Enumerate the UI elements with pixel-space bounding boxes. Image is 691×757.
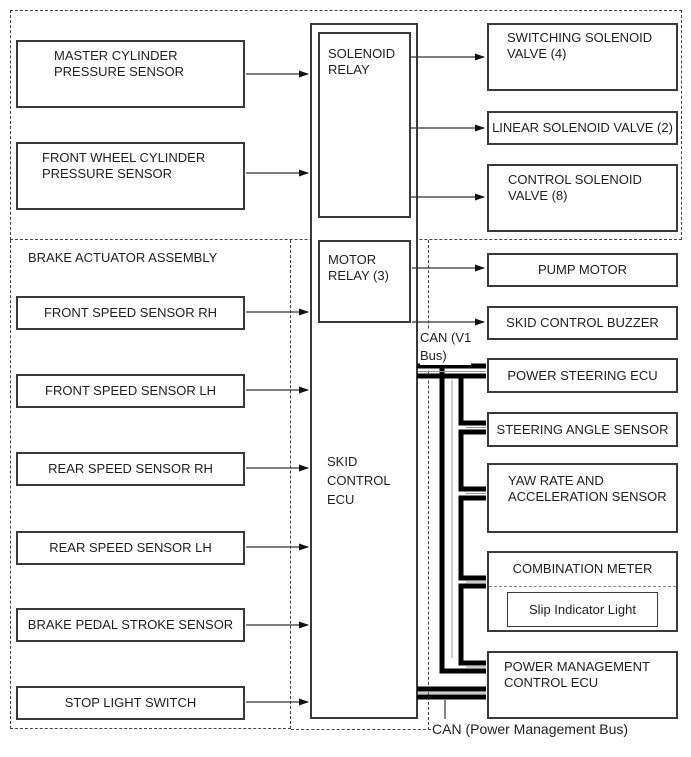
box-label: MOTOR RELAY (3) (328, 252, 405, 284)
box-label: MASTER CYLINDER PRESSURE SENSOR (54, 48, 237, 80)
box-pump-motor: PUMP MOTOR (487, 253, 678, 287)
box-label: STEERING ANGLE SENSOR (489, 422, 676, 438)
box-label: PUMP MOTOR (489, 262, 676, 278)
can-dashed-group-left-border (428, 240, 430, 730)
box-label: LINEAR SOLENOID VALVE (2) (489, 120, 676, 136)
label-brake-actuator-assembly: BRAKE ACTUATOR ASSEMBLY (28, 250, 217, 266)
label-can-v1-bus: CAN (V1 Bus) (420, 329, 471, 365)
box-yaw-rate-acceleration-sensor: YAW RATE AND ACCELERATION SENSOR (487, 463, 678, 533)
box-label: FRONT SPEED SENSOR RH (18, 305, 243, 321)
box-slip-indicator-light: Slip Indicator Light (507, 592, 658, 627)
box-front-speed-sensor-lh: FRONT SPEED SENSOR LH (16, 374, 245, 408)
label-can-power-management-bus: CAN (Power Management Bus) (432, 721, 628, 737)
box-switching-solenoid-valve: SWITCHING SOLENOID VALVE (4) (487, 23, 678, 91)
box-power-steering-ecu: POWER STEERING ECU (487, 358, 678, 393)
box-label: Slip Indicator Light (508, 602, 657, 618)
box-label: YAW RATE AND ACCELERATION SENSOR (508, 473, 672, 505)
box-front-speed-sensor-rh: FRONT SPEED SENSOR RH (16, 296, 245, 330)
combination-meter-divider (489, 586, 676, 587)
box-label: FRONT WHEEL CYLINDER PRESSURE SENSOR (42, 150, 237, 182)
box-label: REAR SPEED SENSOR LH (18, 540, 243, 556)
box-stop-light-switch: STOP LIGHT SWITCH (16, 686, 245, 720)
box-label: SOLENOID RELAY (328, 46, 405, 78)
abs-skid-control-wiring-diagram: MASTER CYLINDER PRESSURE SENSOR FRONT WH… (0, 0, 691, 757)
box-label: POWER STEERING ECU (489, 368, 676, 384)
box-label: STOP LIGHT SWITCH (18, 695, 243, 711)
box-label: FRONT SPEED SENSOR LH (18, 383, 243, 399)
box-motor-relay: MOTOR RELAY (3) (318, 240, 411, 323)
box-brake-pedal-stroke-sensor: BRAKE PEDAL STROKE SENSOR (16, 608, 245, 642)
box-linear-solenoid-valve: LINEAR SOLENOID VALVE (2) (487, 111, 678, 145)
box-label: BRAKE PEDAL STROKE SENSOR (18, 617, 243, 633)
bottom-dashed-extension (291, 729, 431, 731)
box-solenoid-relay: SOLENOID RELAY (318, 32, 411, 218)
box-control-solenoid-valve: CONTROL SOLENOID VALVE (8) (487, 164, 678, 232)
box-label: REAR SPEED SENSOR RH (18, 461, 243, 477)
box-label: CONTROL SOLENOID VALVE (8) (508, 172, 672, 204)
box-front-wheel-cylinder-pressure-sensor: FRONT WHEEL CYLINDER PRESSURE SENSOR (16, 142, 245, 210)
box-label: SWITCHING SOLENOID VALVE (4) (507, 30, 672, 62)
box-label: POWER MANAGEMENT CONTROL ECU (504, 659, 672, 691)
box-power-management-control-ecu: POWER MANAGEMENT CONTROL ECU (487, 651, 678, 719)
combination-meter-label: COMBINATION METER (487, 561, 678, 577)
box-rear-speed-sensor-lh: REAR SPEED SENSOR LH (16, 531, 245, 565)
skid-control-ecu-label: SKID CONTROL ECU (327, 452, 391, 509)
box-steering-angle-sensor: STEERING ANGLE SENSOR (487, 412, 678, 447)
box-rear-speed-sensor-rh: REAR SPEED SENSOR RH (16, 452, 245, 486)
box-skid-control-buzzer: SKID CONTROL BUZZER (487, 306, 678, 340)
box-label: SKID CONTROL BUZZER (489, 315, 676, 331)
box-master-cylinder-pressure-sensor: MASTER CYLINDER PRESSURE SENSOR (16, 40, 245, 108)
